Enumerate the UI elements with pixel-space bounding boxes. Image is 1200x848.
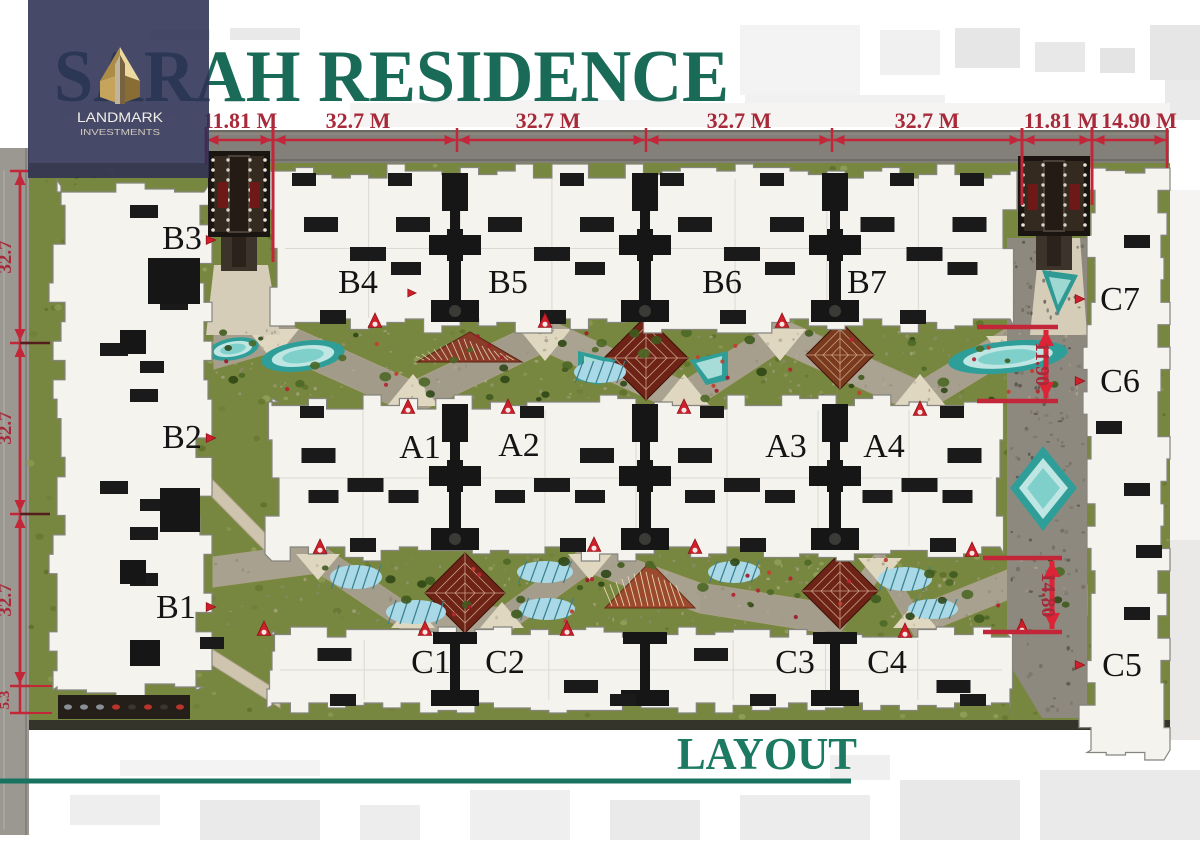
svg-text:C1: C1 — [411, 644, 451, 681]
svg-text:14.80: 14.80 — [1037, 573, 1059, 618]
svg-text:32.7: 32.7 — [0, 583, 16, 617]
svg-text:INVESTMENTS: INVESTMENTS — [80, 127, 160, 137]
svg-text:32.7: 32.7 — [0, 411, 16, 445]
svg-text:C5: C5 — [1102, 647, 1142, 684]
svg-text:B5: B5 — [488, 264, 528, 301]
svg-text:A2: A2 — [498, 427, 540, 464]
svg-text:LAYOUT: LAYOUT — [677, 729, 857, 779]
svg-text:B7: B7 — [847, 264, 887, 301]
svg-text:B2: B2 — [162, 419, 202, 456]
svg-text:11.90: 11.90 — [1031, 342, 1053, 386]
svg-text:A1: A1 — [399, 429, 441, 466]
svg-text:A4: A4 — [863, 428, 905, 465]
svg-text:LANDMARK: LANDMARK — [77, 109, 164, 125]
svg-text:B3: B3 — [162, 220, 202, 257]
svg-text:C7: C7 — [1100, 281, 1140, 318]
svg-text:11.81 M: 11.81 M — [1024, 108, 1099, 133]
svg-text:B1: B1 — [156, 589, 196, 626]
svg-text:C3: C3 — [775, 644, 815, 681]
svg-text:5.3: 5.3 — [0, 691, 13, 710]
svg-text:C6: C6 — [1100, 363, 1140, 400]
svg-text:32.7: 32.7 — [0, 240, 16, 274]
svg-text:A3: A3 — [765, 428, 807, 465]
svg-text:14.90 M: 14.90 M — [1101, 108, 1177, 133]
svg-text:B6: B6 — [702, 264, 742, 301]
svg-text:32.7 M: 32.7 M — [895, 108, 960, 133]
svg-text:B4: B4 — [338, 264, 378, 301]
svg-text:C4: C4 — [867, 644, 907, 681]
svg-text:C2: C2 — [485, 644, 525, 681]
